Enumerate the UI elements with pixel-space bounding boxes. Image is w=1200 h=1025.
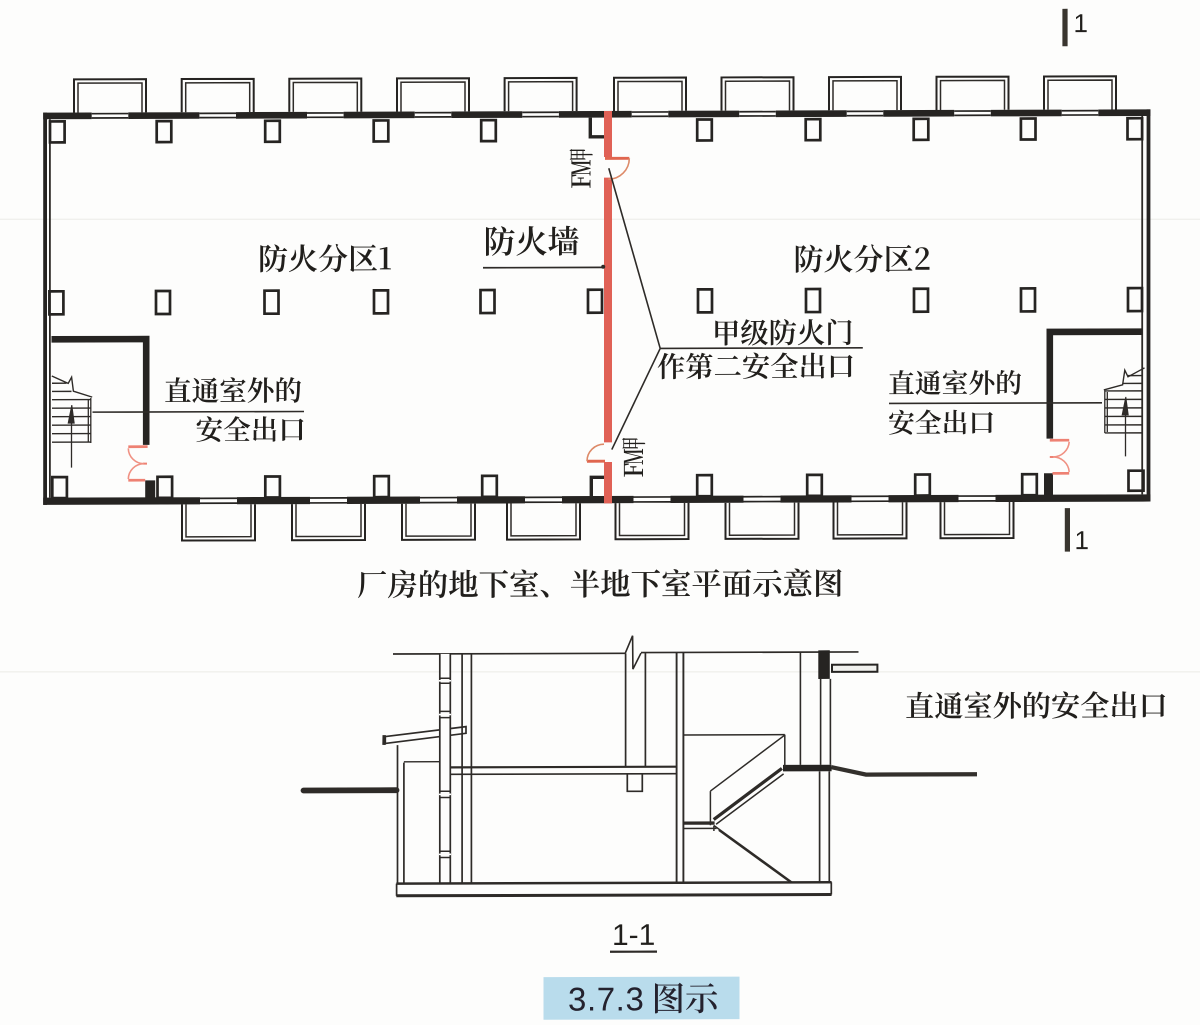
svg-text:1-1: 1-1	[612, 919, 655, 952]
svg-text:3.7.3: 3.7.3	[568, 980, 644, 1017]
svg-text:1: 1	[1075, 525, 1089, 555]
svg-text:1: 1	[1074, 8, 1088, 38]
